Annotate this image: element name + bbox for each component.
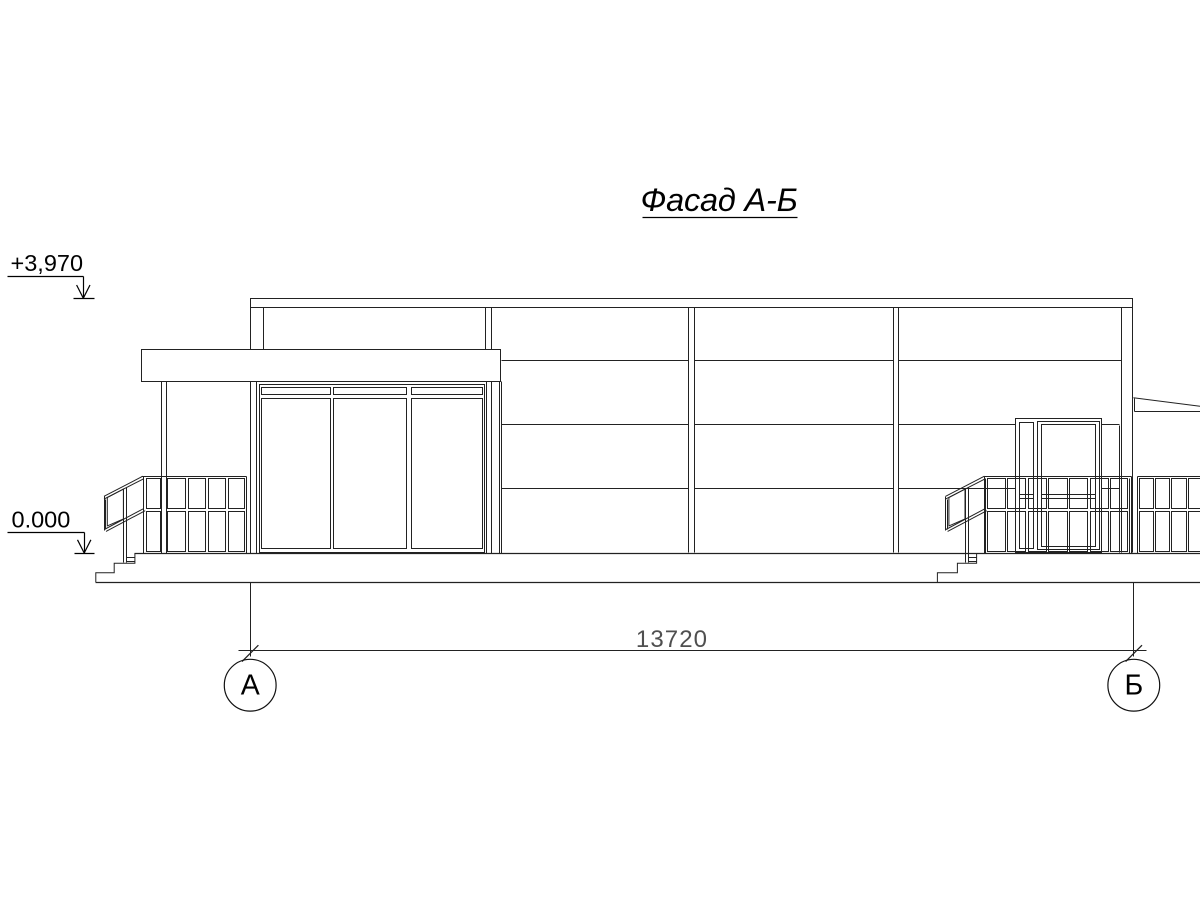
svg-text:13720: 13720 [636,626,708,653]
svg-text:0.000: 0.000 [11,507,70,533]
svg-text:Б: Б [1124,670,1143,702]
svg-text:А: А [241,669,260,701]
svg-text:Фасад А-Б: Фасад А-Б [640,182,797,218]
svg-text:+3,970: +3,970 [10,250,83,276]
